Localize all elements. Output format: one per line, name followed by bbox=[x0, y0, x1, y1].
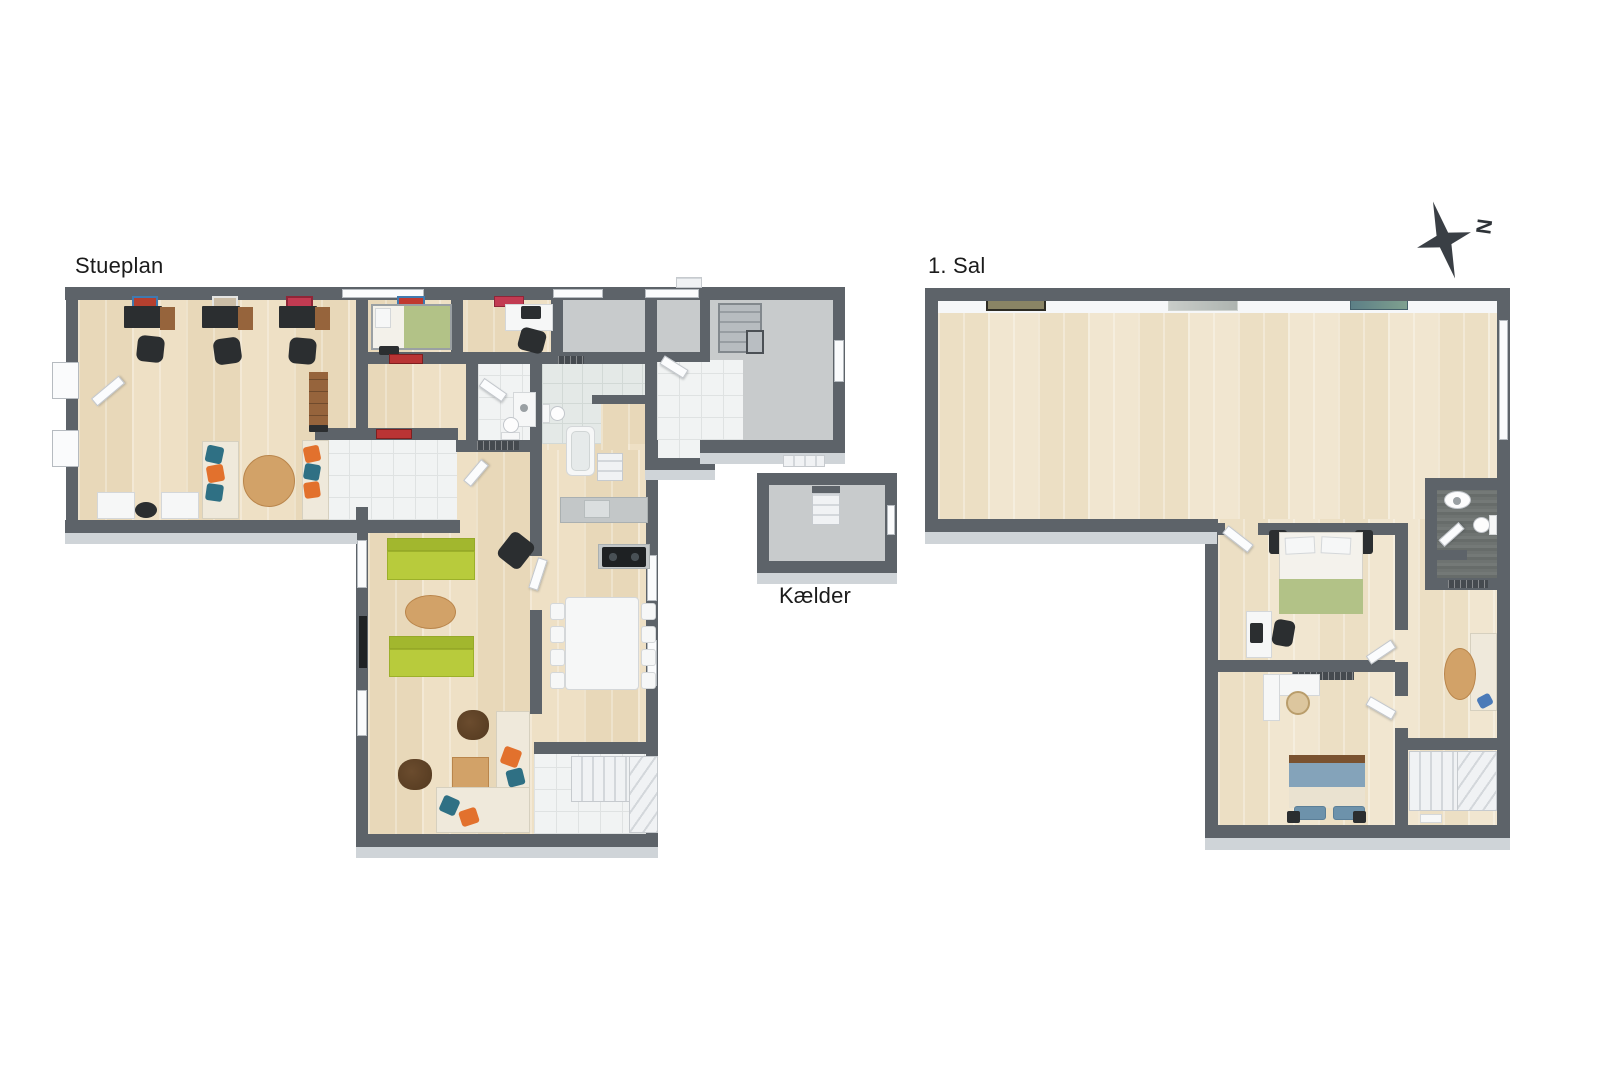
wall bbox=[1217, 660, 1395, 672]
wall bbox=[65, 287, 845, 300]
toilet-tank bbox=[501, 432, 520, 440]
tv-panel bbox=[359, 616, 367, 668]
dining-chair bbox=[550, 626, 565, 643]
utility-tile-floor bbox=[327, 438, 457, 520]
window bbox=[357, 540, 367, 588]
faucet bbox=[520, 404, 528, 412]
computer-monitor bbox=[1250, 623, 1263, 643]
radiator-vent bbox=[477, 441, 519, 450]
bay-window bbox=[52, 362, 79, 399]
wall bbox=[1395, 728, 1408, 825]
picture-frame bbox=[1168, 300, 1238, 311]
staircase bbox=[1409, 751, 1459, 811]
cooktop bbox=[602, 547, 646, 567]
floorplan-canvas: Stueplan 1. Sal Kælder N bbox=[0, 0, 1620, 1080]
dining-chair bbox=[641, 603, 656, 620]
computer-monitor bbox=[521, 306, 541, 319]
window bbox=[553, 289, 603, 298]
rug bbox=[389, 354, 423, 364]
double-bed bbox=[1289, 763, 1365, 787]
radiator-vent bbox=[558, 356, 584, 364]
wall bbox=[466, 364, 478, 452]
basement-staircase bbox=[812, 493, 840, 525]
pillow bbox=[206, 464, 226, 484]
dining-chair bbox=[641, 649, 656, 666]
sofa bbox=[389, 649, 474, 677]
round-table bbox=[243, 455, 295, 507]
armchair bbox=[161, 492, 199, 519]
wall-base bbox=[645, 470, 715, 480]
wall bbox=[530, 610, 542, 714]
cabinet bbox=[1263, 674, 1280, 721]
basement-door bbox=[887, 505, 895, 535]
wall bbox=[700, 440, 845, 453]
stair-mat bbox=[1420, 814, 1442, 823]
wall-base bbox=[1205, 838, 1510, 850]
office-desk bbox=[279, 306, 317, 328]
bay-window bbox=[52, 430, 79, 467]
toilet-tank bbox=[542, 404, 550, 423]
wall bbox=[1395, 662, 1408, 696]
dining-chair bbox=[550, 649, 565, 666]
wall bbox=[925, 301, 938, 532]
basement-label: Kælder bbox=[735, 583, 895, 609]
wall bbox=[757, 485, 769, 561]
office-chair bbox=[288, 337, 317, 365]
wall-base bbox=[65, 533, 357, 544]
side-table bbox=[135, 502, 157, 518]
bed-blanket bbox=[404, 306, 450, 348]
pillow bbox=[303, 481, 321, 499]
office-desk bbox=[124, 306, 162, 328]
kitchen-sink bbox=[584, 500, 610, 518]
bean-bag bbox=[457, 710, 489, 740]
sofa-back bbox=[387, 538, 475, 551]
staircase-winder bbox=[629, 756, 658, 833]
toilet bbox=[1473, 517, 1490, 533]
wall bbox=[757, 561, 897, 573]
first-floor-open-room bbox=[938, 301, 1497, 519]
desk-cabinet bbox=[315, 307, 330, 330]
wall bbox=[1408, 738, 1510, 750]
window bbox=[834, 340, 844, 382]
compass-north-label: N bbox=[1471, 217, 1496, 235]
entrance-steps bbox=[783, 455, 825, 467]
wall bbox=[700, 300, 710, 362]
toilet-tank bbox=[1489, 515, 1497, 535]
dining-table bbox=[565, 597, 639, 690]
toilet bbox=[550, 406, 565, 421]
wall bbox=[451, 300, 463, 360]
wall bbox=[534, 742, 658, 754]
pillow bbox=[303, 463, 322, 482]
pillow bbox=[205, 483, 224, 502]
interior-staircase bbox=[597, 453, 623, 481]
wall-base bbox=[925, 532, 1217, 544]
wall bbox=[530, 452, 542, 556]
entrance-steps bbox=[676, 277, 702, 288]
nook-floor bbox=[601, 404, 647, 444]
chair bbox=[1286, 691, 1310, 715]
faucet bbox=[1453, 497, 1461, 505]
desk-cabinet bbox=[238, 307, 253, 330]
window bbox=[357, 690, 367, 736]
wall bbox=[66, 300, 78, 520]
wall-base bbox=[356, 847, 658, 858]
office-chair bbox=[212, 336, 242, 366]
wall bbox=[1437, 478, 1510, 490]
office-chair bbox=[136, 335, 166, 364]
wall bbox=[356, 300, 368, 435]
dining-chair bbox=[641, 672, 656, 689]
dining-chair bbox=[550, 603, 565, 620]
staircase bbox=[571, 756, 633, 802]
wall bbox=[925, 519, 1217, 532]
coffee-table bbox=[1444, 648, 1476, 700]
bookshelf bbox=[309, 372, 328, 428]
bed-blanket bbox=[1279, 579, 1363, 614]
wall-base bbox=[757, 573, 897, 584]
bed-pillow bbox=[1321, 536, 1352, 555]
wall bbox=[356, 834, 658, 847]
bookshelf-base bbox=[309, 425, 328, 432]
wall bbox=[757, 473, 897, 485]
wall bbox=[925, 288, 1510, 301]
dining-chair bbox=[550, 672, 565, 689]
coffee-table bbox=[405, 595, 456, 629]
wall bbox=[1395, 523, 1408, 630]
bathtub-basin bbox=[571, 431, 590, 471]
office-desk bbox=[202, 306, 240, 328]
wall bbox=[1437, 550, 1467, 560]
wall bbox=[1205, 825, 1510, 838]
stair-landing bbox=[812, 486, 840, 493]
pillow bbox=[303, 445, 322, 464]
wall bbox=[645, 300, 657, 462]
wall bbox=[1205, 519, 1218, 838]
bed-sheet bbox=[1289, 787, 1365, 808]
bed-post bbox=[1287, 811, 1300, 823]
ground-floor-label: Stueplan bbox=[75, 253, 163, 279]
radiator-vent bbox=[1448, 580, 1488, 588]
wall bbox=[1425, 478, 1437, 590]
hall-concrete-floor bbox=[558, 300, 650, 355]
desk-cabinet bbox=[160, 307, 175, 330]
pillow bbox=[204, 444, 224, 464]
sofa-back bbox=[389, 636, 474, 649]
wall bbox=[65, 520, 460, 533]
armchair bbox=[97, 492, 135, 519]
bean-bag bbox=[398, 759, 432, 790]
sofa bbox=[387, 551, 475, 580]
window bbox=[645, 289, 699, 298]
bed-post bbox=[1353, 811, 1366, 823]
first-floor-label: 1. Sal bbox=[928, 253, 985, 279]
staircase-winder bbox=[1457, 751, 1497, 811]
window bbox=[1499, 320, 1508, 440]
compass-rose: N bbox=[1398, 192, 1502, 284]
bed-pillow bbox=[375, 308, 391, 328]
wall-art bbox=[376, 429, 412, 439]
dining-chair bbox=[641, 626, 656, 643]
bed-headboard bbox=[1289, 755, 1365, 763]
toilet bbox=[503, 417, 519, 433]
bed-pillow bbox=[1285, 536, 1316, 555]
wall-heater bbox=[746, 330, 764, 354]
